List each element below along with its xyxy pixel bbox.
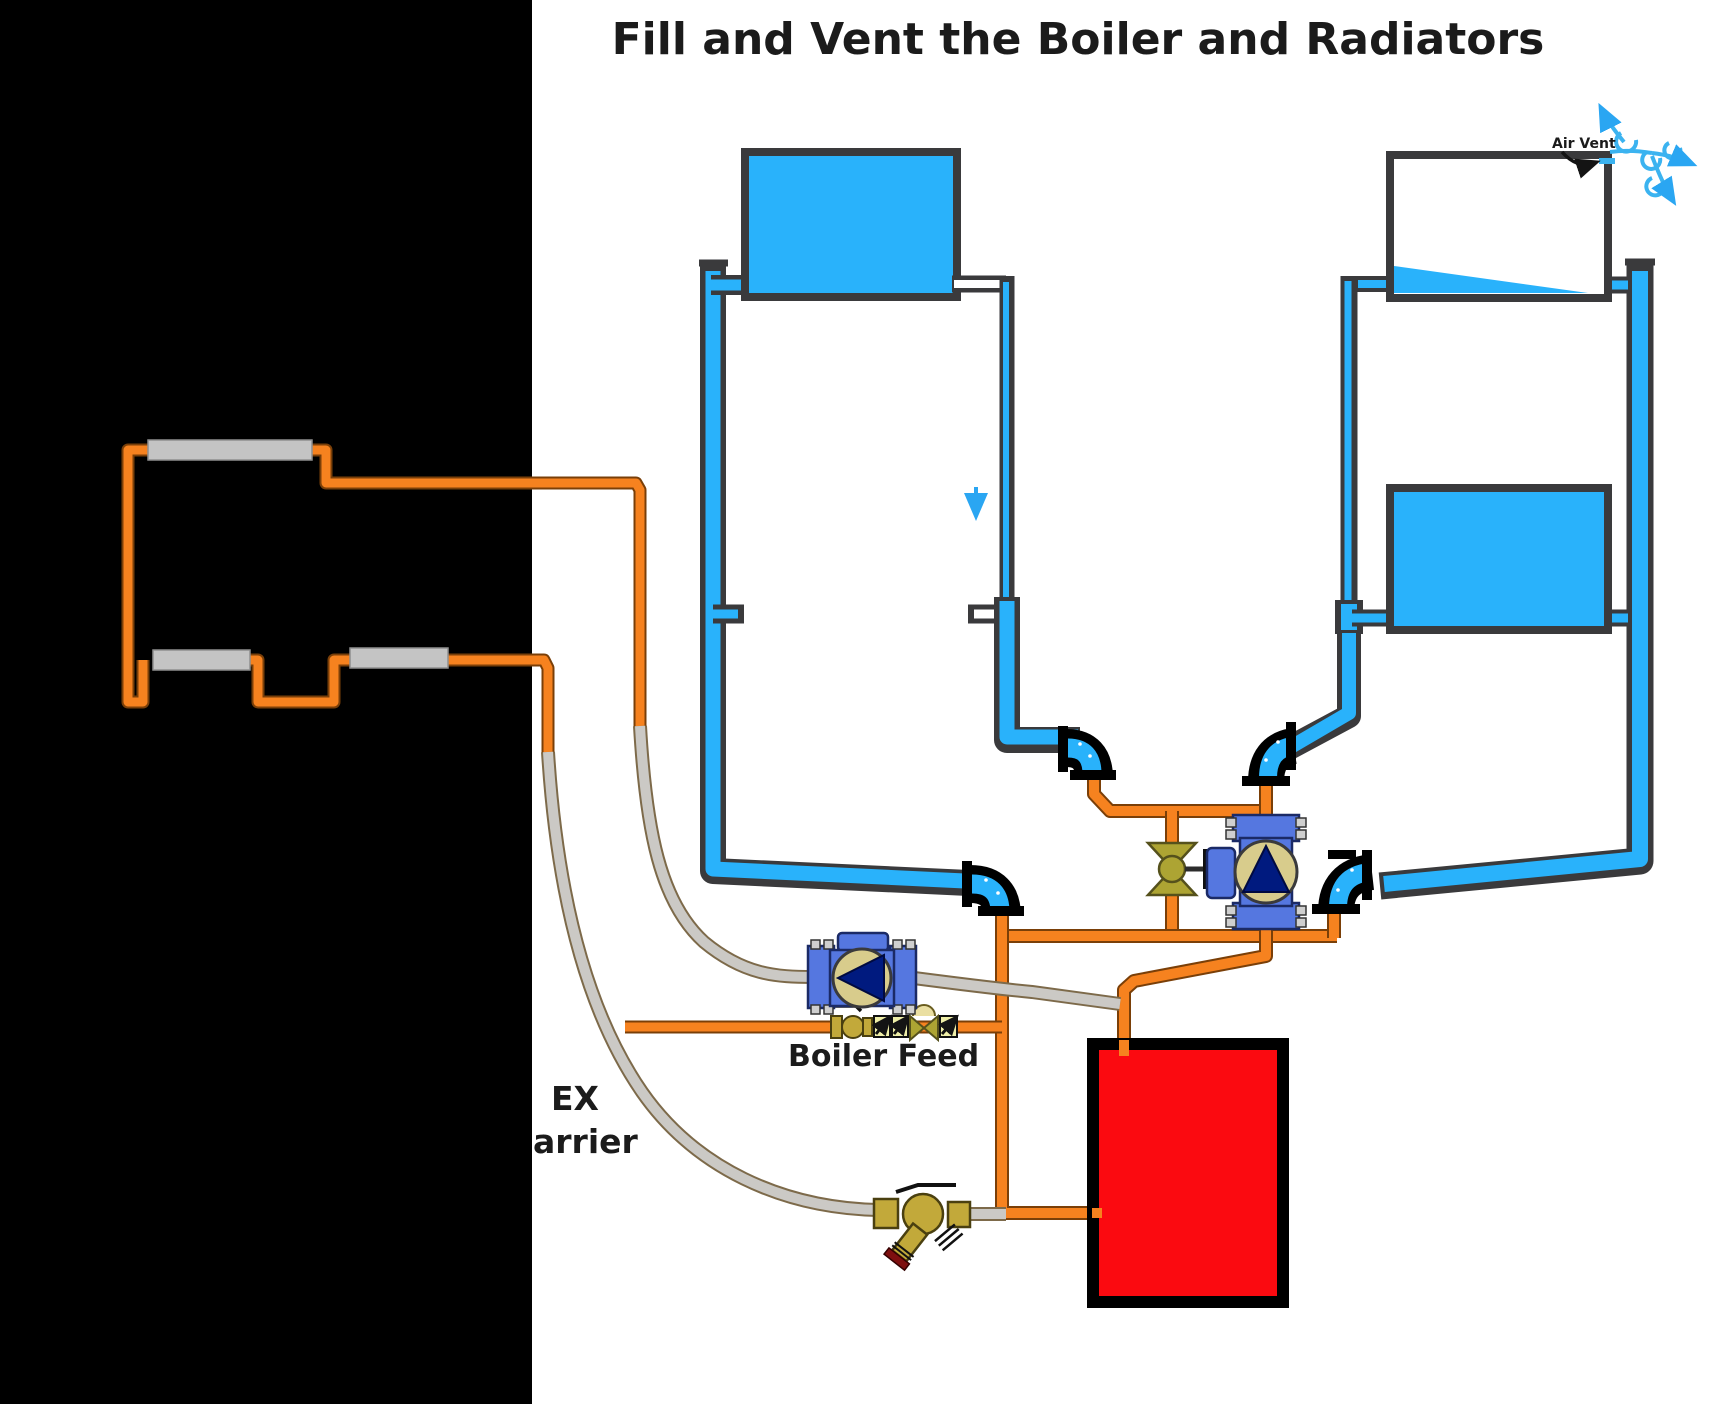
air-vent-swirl-icon: [1602, 110, 1690, 199]
elbow-b-union: [962, 861, 972, 907]
feed-ball-valve-ball: [842, 1016, 864, 1038]
pipe-elbow-fitting-icon-d: [1312, 850, 1372, 914]
drain-valve-right-block: [948, 1202, 970, 1227]
left-radiator: [745, 152, 957, 297]
pex1-curve2: [914, 978, 1120, 1004]
elbow-a-union2: [1070, 770, 1116, 780]
pex1-curve: [640, 726, 814, 977]
elbow-b-union2: [978, 906, 1024, 916]
pipe-elbow-fitting-icon-b: [962, 861, 1024, 916]
baseboard-radiator-upper: [148, 440, 312, 460]
air-vent-nozzle: [1599, 158, 1615, 164]
boiler-supply-outline: [1124, 928, 1266, 1052]
drain-valve-left-block: [874, 1199, 898, 1228]
drain-valve-icon: [874, 1185, 970, 1270]
left-loop-riser-water: [713, 271, 986, 882]
elbow-a-union: [1058, 726, 1068, 772]
right-pump-motor: [1207, 848, 1235, 898]
swirl-arrow-right: [1652, 153, 1690, 163]
boiler-group: [1092, 1040, 1283, 1302]
prv-left: [910, 1016, 924, 1040]
boiler-feed-label: Boiler Feed: [788, 1039, 979, 1074]
pipe-elbow-fitting-icon-c: [1242, 722, 1296, 786]
upper-header-outline: [1094, 774, 1268, 811]
page-title: Fill and Vent the Boiler and Radiators: [612, 14, 1545, 65]
pex-label-fragment-bottom: arrier: [533, 1122, 639, 1161]
diagram-canvas: Fill and Vent the Boiler and Radiators A…: [0, 0, 1728, 1404]
elbow-c-union2: [1242, 776, 1290, 786]
black-region-group: [0, 0, 532, 1404]
baseboard-radiator-lower-right: [350, 648, 448, 668]
bowtie-valve-icon: [1148, 843, 1206, 895]
boiler: [1093, 1044, 1283, 1302]
pipe-elbow-fitting-icon-a: [1058, 726, 1116, 780]
right-radiator-loop: [1280, 155, 1655, 886]
pex1-curve-outline: [640, 726, 814, 977]
lower-right-radiator: [1390, 488, 1608, 630]
boiler-return-pipe: [1002, 912, 1100, 1213]
circulator-pump-icon-right: [1207, 815, 1306, 929]
air-vent-label: Air Vent: [1552, 136, 1616, 152]
elbow-d-swivel: [1328, 850, 1356, 859]
left-loop-lower-pipe: [1007, 597, 1080, 740]
prv-right: [924, 1016, 938, 1040]
heating-diagram-svg: Fill and Vent the Boiler and Radiators A…: [0, 0, 1728, 1404]
ball-valve-icon: [831, 1016, 842, 1038]
pex-tubing: [448, 483, 1120, 1214]
boiler-supply-pipe: [1124, 928, 1266, 1052]
pex-label-fragment-top: EX: [551, 1079, 599, 1118]
elbow-d-union: [1362, 850, 1372, 900]
feed-ball-valve-end: [863, 1018, 872, 1036]
bowtie-valve-ball: [1159, 856, 1185, 882]
circulator-pump-icon-left: [808, 933, 916, 1014]
elbow-c-union: [1286, 722, 1296, 770]
elbow-d-union2: [1312, 904, 1360, 914]
baseboard-radiator-lower-left: [153, 650, 250, 670]
drain-valve-handle: [896, 1185, 956, 1192]
left-loop-riser-pipe: [713, 264, 990, 884]
boiler-return-outline: [1002, 912, 1100, 1213]
left-radiator-loop: [699, 152, 1080, 884]
